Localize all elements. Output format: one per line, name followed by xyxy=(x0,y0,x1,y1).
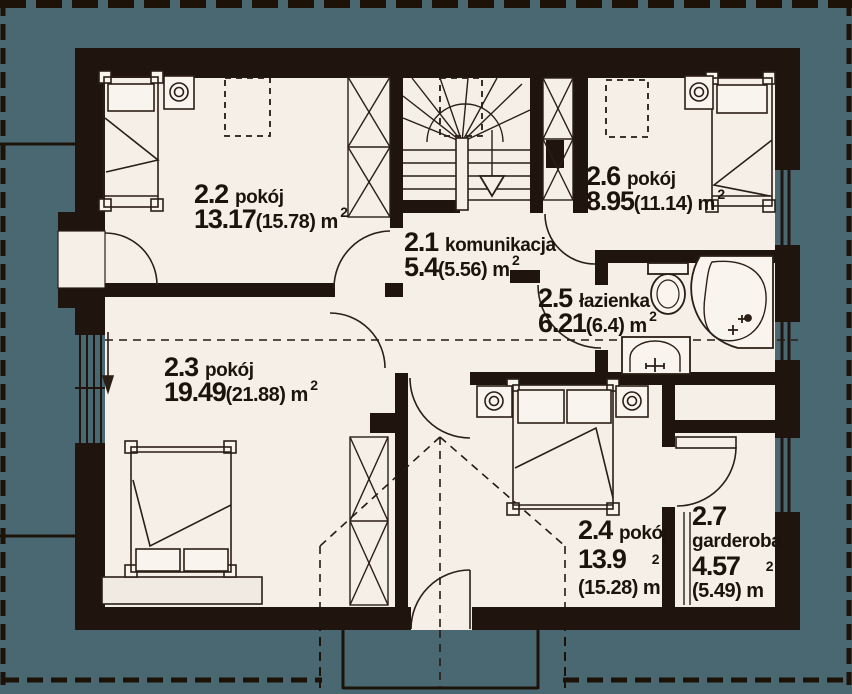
window-room-2-6 xyxy=(775,170,800,245)
label-room-2-3: 2.3pokój 19.49(21.88)m2 xyxy=(164,355,318,405)
nightstand-lamp-2-6 xyxy=(685,76,713,109)
sink xyxy=(622,337,690,374)
nightstand-lamp-2-4-left xyxy=(477,386,512,417)
label-room-2-7: 2.7 garderoba 4.572 (5.49)m xyxy=(692,504,781,604)
label-room-2-5: 2.5łazienka 6.21(6.4)m2 xyxy=(538,286,657,336)
label-room-2-4: 2.4pokój 13.92 (15.28)m xyxy=(578,516,668,603)
label-room-2-6: 2.6pokój 8.95(11.14)m2 xyxy=(586,164,725,214)
window-garderoba xyxy=(775,438,800,512)
gable-lines xyxy=(0,144,75,536)
window-room-2-3 xyxy=(75,333,105,445)
nightstand-lamp-2-2 xyxy=(164,76,194,109)
nightstand-lamp-2-4-right xyxy=(616,386,648,417)
label-room-2-1: 2.1komunikacja 5.4(5.56)m2 xyxy=(404,230,556,280)
floor-plan: 2.2pokój 13.17(15.78)m2 2.1komunikacja 5… xyxy=(0,0,852,694)
window-bathroom xyxy=(775,322,800,360)
label-room-2-2: 2.2pokój 13.17(15.78)m2 xyxy=(194,182,348,232)
